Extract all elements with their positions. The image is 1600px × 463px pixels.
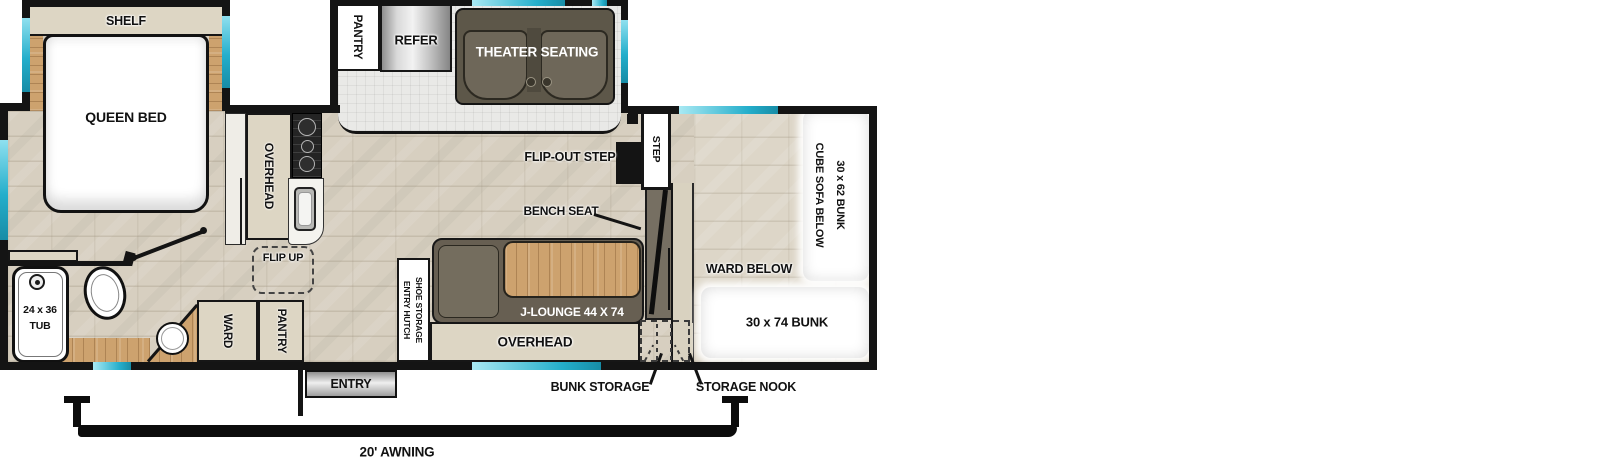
flip-out-step — [616, 142, 641, 184]
wall-kitchen-top — [225, 105, 340, 113]
theater-cushion-right — [540, 30, 608, 100]
awning-bracket-left-post — [73, 401, 81, 427]
bed-panel-left — [30, 36, 43, 111]
window-slide-right — [621, 20, 628, 83]
window-bedroom-right — [222, 16, 230, 88]
bunk-upper-label: 30 x 62 BUNK — [834, 160, 846, 229]
living-overhead-label: OVERHEAD — [498, 335, 573, 350]
shoe-storage-label: SHOE STORAGE — [414, 277, 424, 343]
ward-label: WARD — [221, 314, 233, 348]
j-lounge-table — [503, 241, 641, 298]
ward-below-label: WARD BELOW — [706, 262, 792, 276]
window-slide-top-1 — [472, 0, 565, 6]
bath-door-knob-left — [130, 254, 137, 261]
tub-size-label: 24 x 36 — [23, 304, 57, 316]
bunk-floor-divider — [692, 183, 694, 323]
wall-slide-left — [330, 0, 338, 113]
burner-3 — [299, 156, 315, 172]
window-bath-bottom — [93, 362, 131, 370]
window-slide-top-2 — [592, 0, 607, 6]
flip-up-label: FLIP UP — [263, 252, 304, 264]
pantry-bottom-label: PANTRY — [275, 309, 287, 354]
bunk-lower-label: 30 x 74 BUNK — [746, 315, 828, 330]
bath-wall — [8, 261, 132, 266]
entry-label: ENTRY — [331, 377, 372, 391]
wall-bedroom-top — [22, 0, 230, 7]
awning-bar — [78, 425, 737, 437]
cupholder-left-icon — [526, 77, 536, 87]
kitchen-sink-basin — [298, 192, 312, 226]
wall-step-notch — [627, 114, 638, 124]
j-lounge-chaise — [438, 245, 499, 318]
awning-label: 20' AWNING — [360, 445, 435, 460]
window-bunk-top — [679, 106, 778, 114]
bath-sink-rim — [161, 327, 184, 350]
entry-door-frame — [298, 370, 303, 416]
j-lounge-label: J-LOUNGE 44 X 74 — [520, 305, 624, 319]
step-label: STEP — [650, 136, 662, 163]
theater-cushion-left — [463, 30, 528, 100]
awning-bracket-right-post — [731, 401, 739, 427]
bunk-ladder-rail — [668, 248, 670, 310]
pantry-top-label: PANTRY — [351, 15, 363, 60]
wall-right — [869, 106, 877, 370]
refer-label: REFER — [394, 33, 437, 48]
theater-seating-label: THEATER SEATING — [476, 45, 599, 60]
shelf-label: SHELF — [106, 14, 146, 28]
wall-bottom — [0, 362, 877, 370]
window-bottom-center — [472, 362, 601, 370]
window-left-wall — [0, 140, 8, 240]
cube-sofa-below-label: CUBE SOFA BELOW — [813, 143, 825, 248]
bench-seat-label: BENCH SEAT — [523, 204, 598, 218]
burner-1 — [298, 118, 316, 136]
storage-nook-divider-2 — [670, 322, 672, 360]
tub-faucet-dot — [35, 280, 40, 285]
window-bedroom-left — [22, 18, 30, 92]
entry-hutch-label: ENTRY HUTCH — [402, 281, 412, 339]
kitchen-overhead-label: OVERHEAD — [262, 143, 276, 209]
tub-label: TUB — [30, 320, 51, 332]
floor-plan: 24 x 36 TUB WARD PANTRY OVERHEAD FLIP UP… — [0, 0, 1600, 463]
flip-out-step-label: FLIP-OUT STEP — [524, 150, 615, 164]
bath-door-knob-right — [200, 227, 207, 234]
cupholder-right-icon — [542, 77, 552, 87]
bed-panel-right — [209, 36, 222, 111]
storage-nook-label: STORAGE NOOK — [696, 380, 796, 394]
bunk-storage-label: BUNK STORAGE — [551, 380, 650, 394]
kitchen-counter-face — [225, 113, 246, 245]
burner-2 — [301, 140, 314, 153]
storage-nook-divider-1 — [656, 322, 658, 360]
kitchen-cabinet-divider — [240, 178, 242, 244]
queen-bed-label: QUEEN BED — [85, 109, 166, 125]
